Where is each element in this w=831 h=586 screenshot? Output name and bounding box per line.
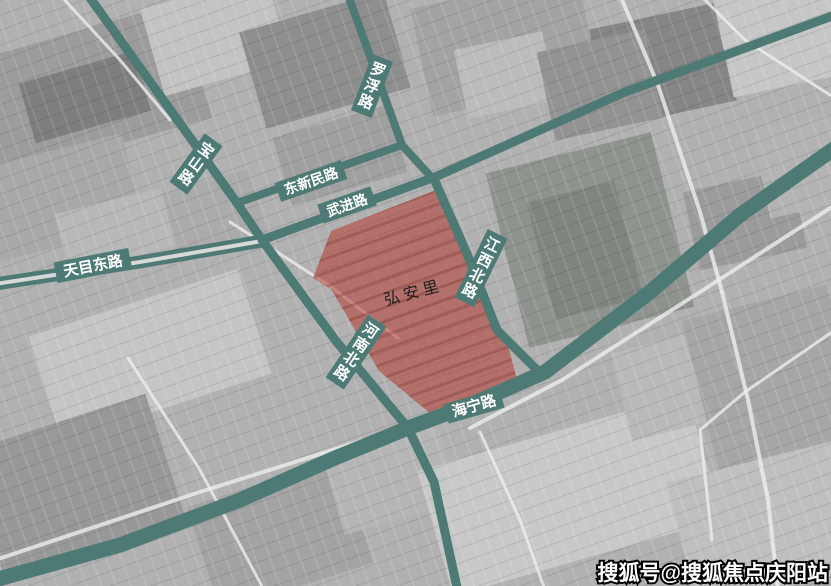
watermark: 搜狐号@搜狐焦点庆阳站 <box>598 561 828 585</box>
map-screenshot: 宝山路 罗浮路 东新民路 武进路 天目东路 江西北路 河南北路 <box>0 0 831 586</box>
satellite-map: 宝山路 罗浮路 东新民路 武进路 天目东路 江西北路 河南北路 <box>0 0 831 586</box>
